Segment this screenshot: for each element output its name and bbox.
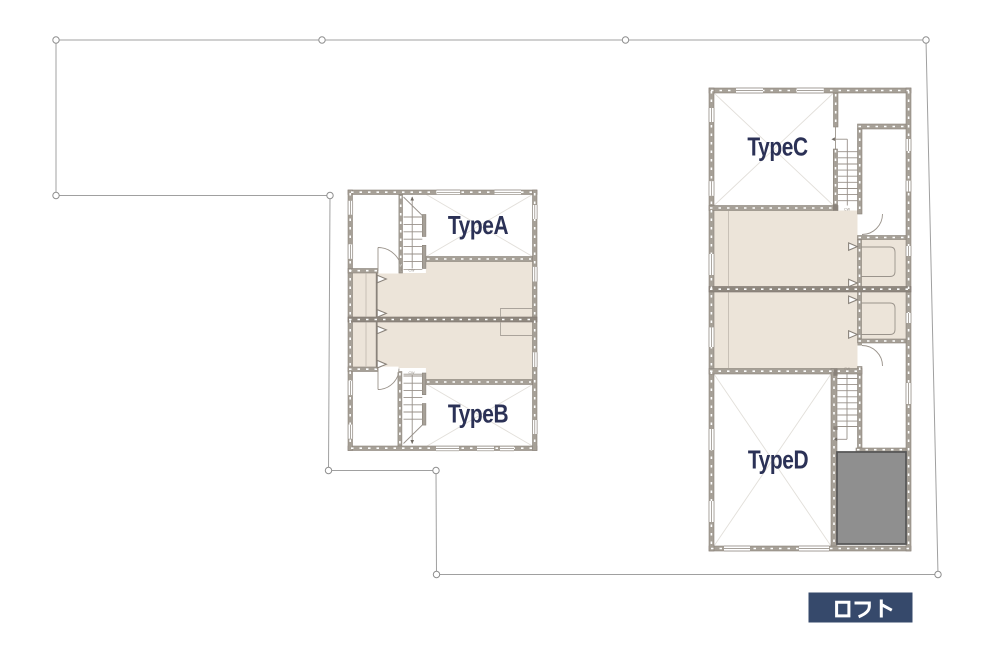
svg-text:TypeC: TypeC xyxy=(747,133,808,161)
svg-text:CW: CW xyxy=(409,371,416,375)
svg-text:CW: CW xyxy=(409,269,416,273)
svg-text:CW: CW xyxy=(844,207,851,211)
svg-text:TypeB: TypeB xyxy=(448,400,508,428)
svg-text:TypeD: TypeD xyxy=(748,445,808,473)
svg-text:CW: CW xyxy=(844,367,851,371)
svg-text:TypeA: TypeA xyxy=(448,211,509,239)
